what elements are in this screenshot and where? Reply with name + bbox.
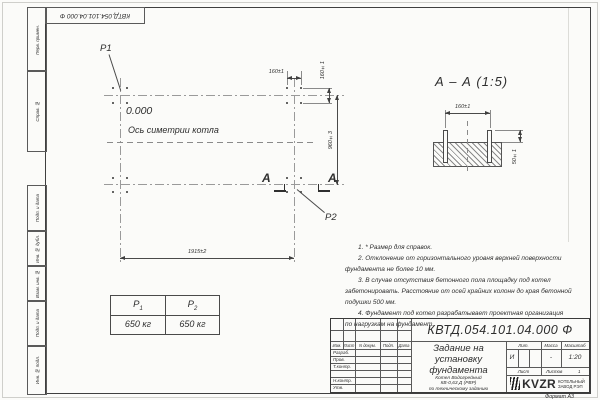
tb-role-nkontr: Н.контр. (333, 378, 352, 383)
dim-line-1915 (120, 258, 294, 259)
section-cut-mark (318, 190, 330, 192)
centerline-right-column (294, 78, 295, 262)
dim-text-960-wrap: 960±3 (328, 122, 334, 158)
tb-lit-label: Лит. (506, 343, 541, 348)
stamp-podp-data-2: Подп. и дата (27, 300, 47, 347)
centerline-top-row (104, 95, 344, 96)
note-line: 3. В случае отсутствия бетонного пола пл… (345, 275, 595, 286)
tb-role-tkontr: Т.контр. (333, 364, 351, 369)
stamp-inv-dubl: Инв. № дубл. (27, 230, 47, 267)
caption-line: ЗАВОД РЭП (558, 384, 585, 389)
doc-title-line: фундамента (411, 365, 506, 376)
stamp-label: Перв. примен. (35, 25, 40, 55)
anchor-dot (286, 87, 288, 89)
title-block-product-name: Котел Водогрейный КВ-0,63 Д (РВР) по тех… (411, 376, 506, 392)
dim-line-section-160 (445, 113, 490, 114)
anchor-dot (126, 191, 128, 193)
manufacturer-logo-cell: KVZR КОТЕЛЬНЫЙ ЗАВОД РЭП (506, 375, 589, 392)
symmetry-axis-label: Ось симетрии котла (128, 125, 219, 135)
format-note: Формат А3 (545, 394, 574, 400)
tb-sheet-label: Лист (506, 369, 541, 374)
title-block-doc-number: КВТД.054.101.04.000 Ф (411, 319, 589, 341)
dim-arrow (327, 88, 331, 93)
p-sub: 1 (140, 306, 143, 312)
stamp-perv-primen: Перв. примен. (27, 7, 47, 72)
anchor-dot (300, 87, 302, 89)
dim-arrow (518, 130, 522, 135)
note-line: 2. Отклонение от горизонтального уровня … (345, 253, 595, 264)
section-view-title: А – А (1:5) (435, 74, 508, 89)
anchor-dot (300, 177, 302, 179)
tb-line (411, 341, 589, 342)
anchor-dot (286, 177, 288, 179)
load-table-value-p1: 650 кг (111, 319, 165, 329)
top-doc-number: КВТД.054.101.04.000 Ф (60, 12, 130, 19)
kvzr-logo-caption: КОТЕЛЬНЫЙ ЗАВОД РЭП (558, 379, 585, 389)
tb-mass-value: - (541, 354, 561, 361)
tb-lit-value: И (506, 354, 518, 361)
stamp-inv-podl: Инв. № подл. (27, 345, 47, 395)
dim-line-960 (337, 95, 338, 185)
stamp-label: Взам. инв. № (35, 270, 40, 298)
tb-sheets-value: 1 (578, 369, 581, 374)
stamp-label: Подп. и дата (35, 309, 40, 337)
dim-text-section-50-wrap: 50±1 (512, 144, 518, 170)
stamp-label: Подп. и дата (35, 194, 40, 222)
load-point-p2-label: P2 (325, 212, 337, 223)
tb-role-razrab: Разраб. (333, 350, 349, 355)
tb-mass-label: Масса (541, 343, 561, 348)
anchor-dot (112, 177, 114, 179)
doc-title-line: установку (411, 354, 506, 365)
anchor-dot (286, 102, 288, 104)
centerline-bottom-row (104, 184, 344, 185)
elevation-mark: 0.000 (126, 105, 152, 117)
load-table: P1 P2 650 кг 650 кг (110, 295, 220, 335)
kvzr-logo-text: KVZR (522, 377, 556, 391)
anchor-dot (126, 87, 128, 89)
dim-arrow (120, 256, 125, 260)
stamp-podp-data-1: Подп. и дата (27, 185, 47, 232)
tb-col-izm: Изм. (331, 343, 343, 348)
tb-line (331, 370, 411, 371)
dim-text-section-50: 50±1 (512, 149, 518, 164)
note-line: забетонировать. Расстояние от осей крайн… (345, 286, 595, 297)
product-line: по техническому заданию (411, 387, 506, 392)
tb-line (397, 319, 398, 392)
fold-mark-line (568, 8, 569, 242)
note-line: фундамента не более 10 мм. (345, 264, 595, 275)
doc-title-line: Задание на (411, 343, 506, 354)
ext-line (303, 103, 332, 104)
stamp-vzam-inv: Взам. инв. № (27, 265, 47, 302)
dim-arrow (287, 76, 292, 80)
dim-arrow (518, 137, 522, 142)
tb-scale-label: Масштаб (561, 343, 589, 348)
top-doc-number-box: КВТД.054.101.04.000 Ф (45, 7, 145, 24)
tb-col-ndocum: N докум. (355, 343, 380, 348)
load-table-value-p2: 650 кг (166, 319, 219, 329)
p-sub: 2 (194, 306, 197, 312)
section-centerline (467, 121, 468, 171)
dim-text-160-vertical: 160±1 (320, 61, 326, 79)
tb-col-list: Лист (343, 343, 355, 348)
drawing-sheet: Перв. примен. Справ. № Подп. и дата Инв.… (0, 0, 600, 400)
dim-arrow (296, 76, 301, 80)
anchor-dot (126, 102, 128, 104)
anchor-dot (112, 102, 114, 104)
technical-notes: 1. * Размер для справок. 2. Отклонение о… (345, 242, 595, 330)
ext-line (301, 71, 302, 85)
tb-line (518, 349, 519, 367)
tb-sheets-label: Листов (546, 369, 562, 374)
anchor-dot (112, 87, 114, 89)
boiler-symmetry-axis-line (107, 142, 315, 143)
dim-text-1915: 1915±2 (188, 249, 206, 255)
tb-line (380, 319, 381, 392)
anchor-dot (300, 102, 302, 104)
table-divider (111, 315, 219, 316)
dim-arrow (289, 256, 294, 260)
section-cut-tick (284, 184, 285, 192)
anchor-dot (126, 177, 128, 179)
tb-role-utv: Утв. (333, 385, 343, 390)
title-block-document-title: Задание на установку фундамента (411, 343, 506, 376)
tb-col-data: Дата (397, 343, 411, 348)
note-line: 1. * Размер для справок. (345, 242, 595, 253)
stamp-label: Инв. № дубл. (35, 235, 40, 263)
dim-arrow (335, 95, 339, 100)
anchor-bolt-left (443, 130, 448, 163)
tb-line (355, 319, 356, 392)
tb-role-prov: Пров. (333, 357, 345, 362)
anchor-dot (112, 191, 114, 193)
ext-line (502, 142, 523, 143)
load-table-header-p1: P1 (111, 299, 165, 312)
section-letter-left: А (262, 171, 271, 185)
load-point-p1-label: P1 (100, 43, 112, 54)
dim-arrow (485, 111, 490, 115)
dim-arrow (327, 98, 331, 103)
title-block: КВТД.054.101.04.000 Ф Изм. Лист N докум.… (330, 318, 590, 393)
tb-col-podp: Подп. (380, 343, 397, 348)
tb-scale-value: 1:20 (561, 354, 589, 361)
tb-line (529, 349, 530, 367)
load-table-header-p2: P2 (166, 299, 219, 312)
caption-line: КОТЕЛЬНЫЙ (558, 379, 585, 384)
dim-arrow (445, 111, 450, 115)
anchor-bolt-right (487, 130, 492, 163)
note-line: подушки 500 мм. (345, 297, 595, 308)
kvzr-coil-icon (510, 377, 520, 390)
dim-text-160-horizontal: 160±1 (252, 69, 284, 75)
ext-line (490, 110, 491, 128)
anchor-dot (286, 191, 288, 193)
stamp-label: Справ. № (35, 101, 40, 122)
stamp-sprav-no: Справ. № (27, 70, 47, 152)
stamp-label: Инв. № подл. (35, 356, 40, 384)
section-cut-tick (318, 184, 319, 192)
dim-text-960: 960±3 (328, 131, 334, 149)
dim-text-section-160: 160±1 (455, 104, 470, 110)
section-letter-right: А (328, 171, 337, 185)
dim-text-160-vertical-wrap: 160±1 (320, 54, 326, 86)
centerline-left-column (120, 78, 121, 262)
